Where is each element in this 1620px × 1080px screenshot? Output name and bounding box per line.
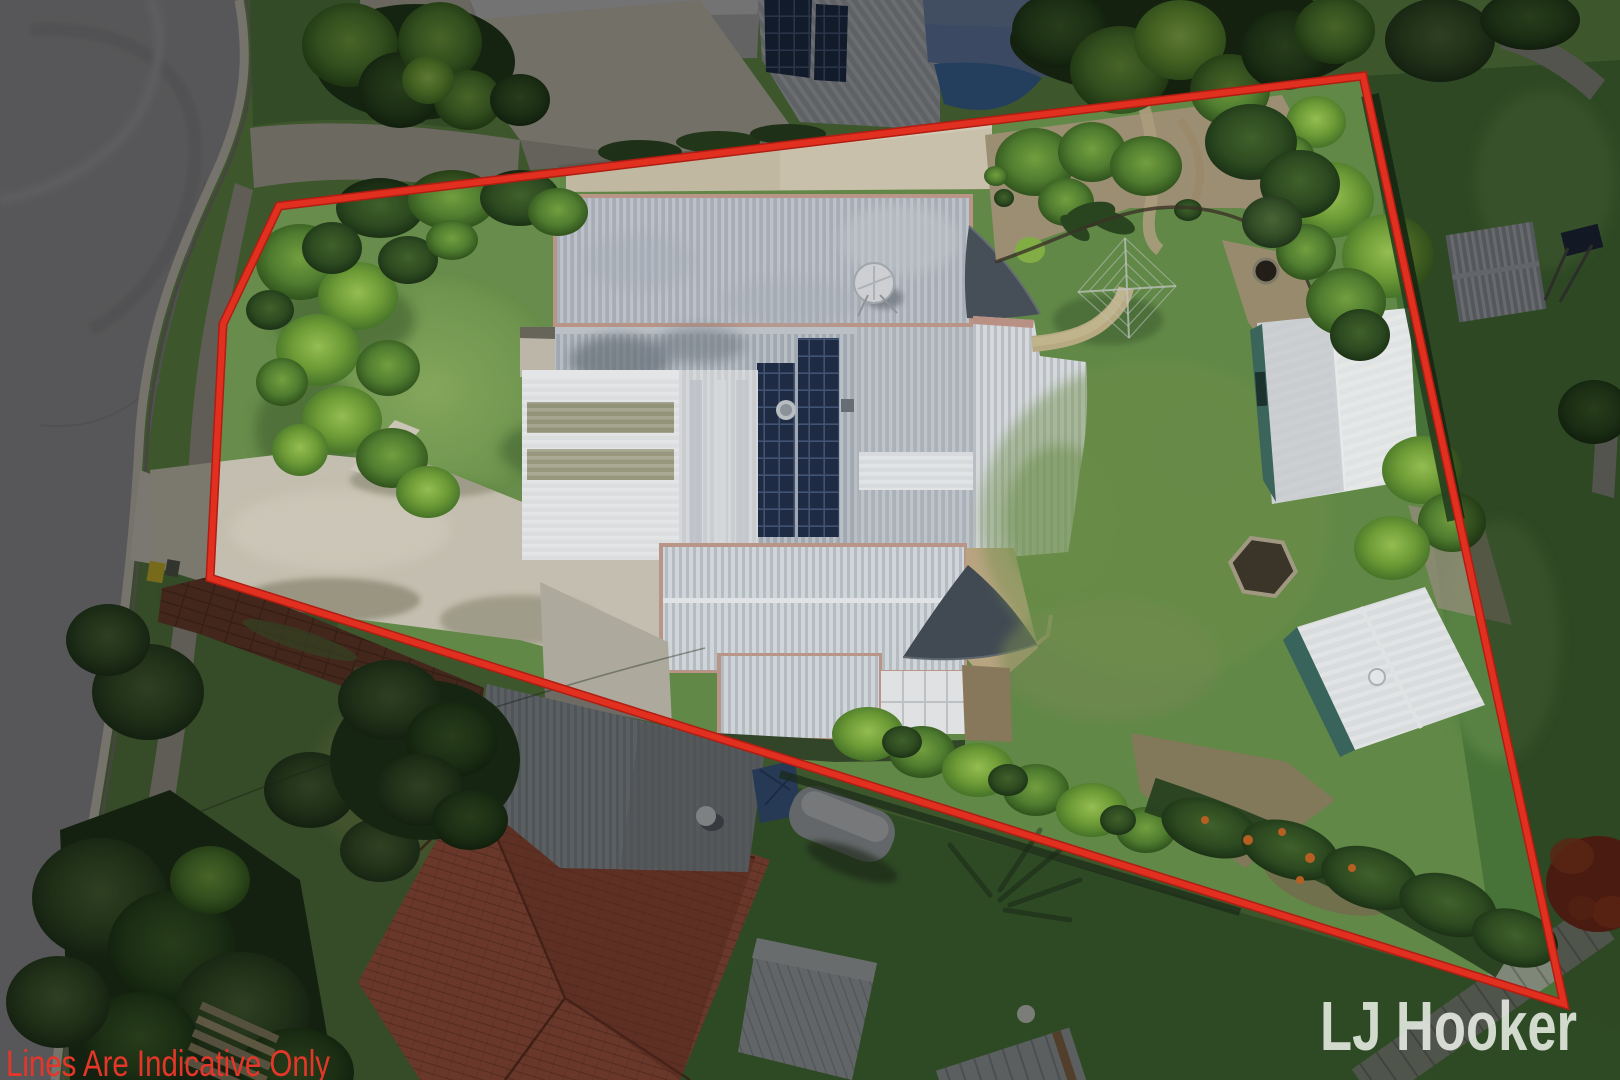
svg-text:Lines Are Indicative Only: Lines Are Indicative Only — [6, 1043, 330, 1080]
svg-text:LJ Hooker: LJ Hooker — [1320, 987, 1577, 1065]
